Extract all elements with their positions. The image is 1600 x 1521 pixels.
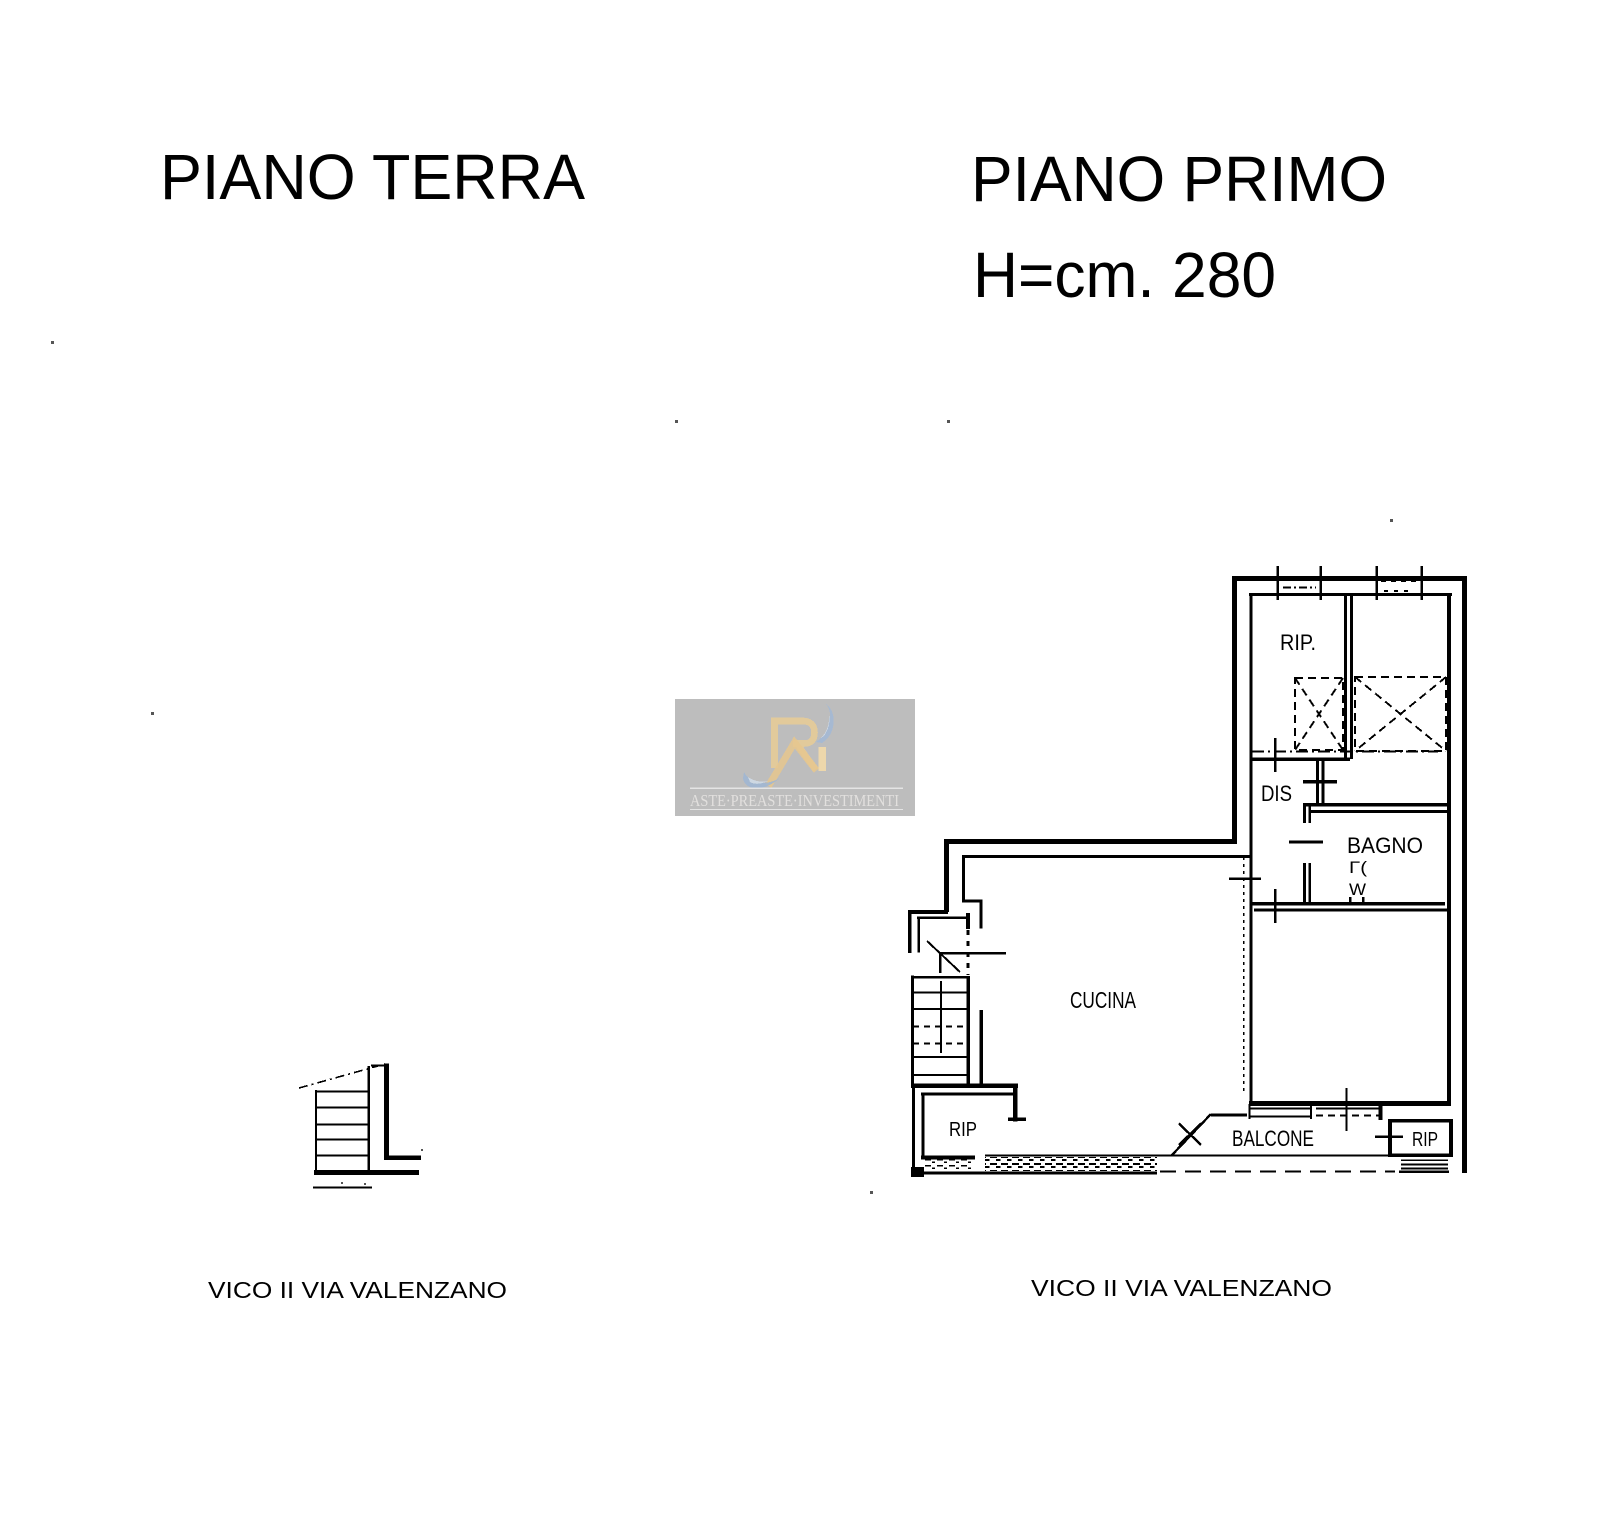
- svg-text:CUCINA: CUCINA: [1070, 987, 1136, 1013]
- svg-text:VICO II VIA VALENZANO: VICO II VIA VALENZANO: [1031, 1275, 1332, 1301]
- svg-text:DIS: DIS: [1261, 781, 1292, 806]
- svg-text:BAGNO: BAGNO: [1347, 833, 1423, 858]
- svg-text:Γ(: Γ(: [1349, 858, 1367, 877]
- svg-text:W: W: [1349, 880, 1366, 899]
- svg-text:ASTE·PREASTE·INVESTIMENTI: ASTE·PREASTE·INVESTIMENTI: [690, 791, 899, 810]
- svg-text:VICO II VIA VALENZANO: VICO II VIA VALENZANO: [208, 1277, 507, 1303]
- svg-text:RIP: RIP: [1412, 1129, 1438, 1151]
- svg-text:RIP.: RIP.: [1280, 630, 1316, 655]
- svg-text:RIP: RIP: [949, 1119, 977, 1141]
- svg-text:BALCONE: BALCONE: [1232, 1126, 1314, 1151]
- svg-text:PIANO TERRA: PIANO TERRA: [160, 141, 585, 213]
- svg-text:H=cm. 280: H=cm. 280: [973, 239, 1276, 311]
- svg-text:PIANO PRIMO: PIANO PRIMO: [971, 143, 1387, 215]
